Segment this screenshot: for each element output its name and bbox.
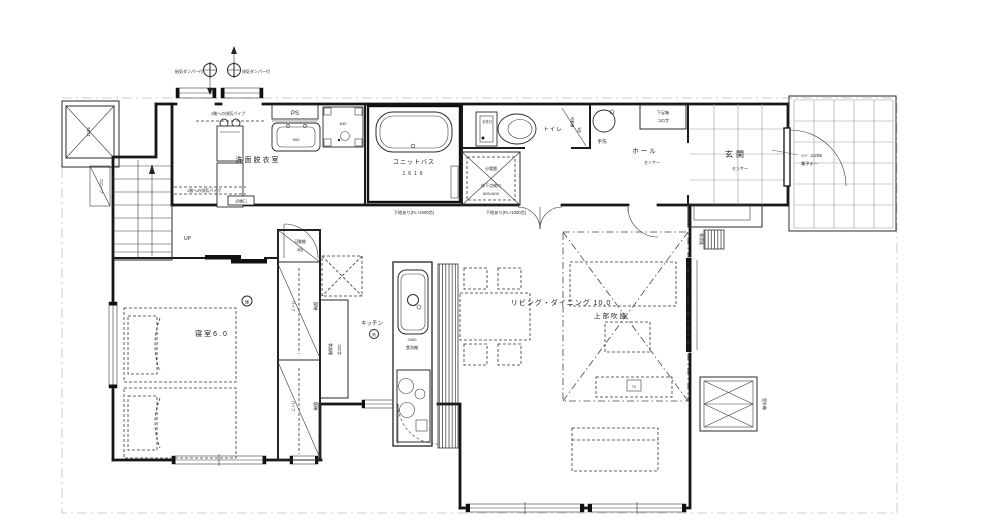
closet-shelf-count: 3段: [297, 247, 303, 252]
closet-shelf-label: 可動棚: [294, 239, 306, 244]
dist-board-label: 分電盤: [485, 165, 497, 171]
vanity-width-label: 900: [293, 137, 300, 142]
bathroom: ユニットバス 1616: [368, 106, 460, 202]
shoe-box-label: 下足箱: [657, 109, 669, 115]
kitchen-counter: 2400 食洗機: [393, 262, 432, 446]
floor-plan-drawing: 1105 スロープ: [0, 0, 1000, 520]
pipe-space: PS: [272, 105, 318, 121]
closet-column: 可動棚 3段 収納 パイプ 収納 パイプ: [278, 224, 320, 460]
entrance-door-model: ｲﾉﾍﾞ 21050: [801, 153, 823, 158]
slope-label: スロープ: [99, 179, 104, 194]
vanity-unit: 900: [272, 123, 320, 151]
closet-1: 収納 パイプ: [278, 262, 320, 360]
kitchen: 食器棚 コの字 キッチン 熱 2400 食洗機: [320, 256, 458, 448]
outline-frame: [62, 98, 897, 513]
living-south-window-1: [466, 502, 584, 514]
toilet-shelf-label: 可動棚: [570, 117, 575, 128]
shaft-dim-label: 1105: [86, 127, 91, 137]
counter-front-panel: [438, 264, 458, 448]
laundry-room: PS 900 640 2階への排気パイプ 1階への排気パイプ 点検口: [174, 105, 363, 207]
hanger-pipe1-label: パイプ: [291, 301, 296, 312]
hall: 手洗 下足箱 コの字 ホール センサー: [593, 105, 686, 165]
base-note-2: 下地あり(FL+1000芯): [486, 209, 527, 216]
washer-pan: 640: [323, 107, 363, 147]
vent-access-label: 点検口: [235, 199, 247, 204]
toilet-room: 手洗付 トイレ 可動棚 3段: [476, 108, 586, 146]
pipe-space-label: PS: [291, 111, 299, 117]
vent-top-note: 2階への排気パイプ: [211, 110, 245, 116]
heat-detector-glyph: 熱: [372, 332, 376, 337]
washer-pan-label: 640: [340, 121, 347, 126]
exhaust-damper-label: 排気ダンパー付: [242, 68, 270, 74]
slope-strip: スロープ: [90, 166, 110, 206]
laundry-room-label: 洗面脱衣室: [236, 155, 281, 164]
entrance-label: 玄関: [725, 149, 747, 159]
bedroom-west-window: [109, 302, 117, 388]
dishwasher-width-label: 2400: [408, 337, 418, 342]
staircase: UP: [113, 160, 192, 260]
bedroom: 煙 寝室6.0: [124, 255, 267, 458]
cupboard-shape: コの字: [337, 343, 343, 355]
outdoor-unit: 室外機: [700, 377, 768, 431]
water-heater-label: 給湯器: [699, 233, 704, 245]
storage1-label: 収納: [312, 302, 319, 311]
bath-label: ユニットバス: [393, 159, 435, 166]
floor-hatch-size: 600×600: [483, 191, 499, 196]
hand-wash-label: 手洗: [598, 138, 607, 145]
entrance-note: センサー: [732, 166, 748, 171]
hanger-pipe2-label: パイプ: [291, 401, 296, 412]
tv-board: TV: [596, 377, 672, 397]
toilet-shelf-count: 3段: [577, 127, 582, 133]
entrance: 玄関 センサー ｲﾉﾍﾞ 21050 電子キー 給湯器: [688, 96, 896, 249]
laundry-high-window-2: [221, 88, 263, 98]
living-area: TV リビング・ダイニング 10.0 上部吹抜: [511, 232, 688, 471]
floor-hatch-box: 分電盤 床下点検口 600×600: [462, 152, 520, 205]
bed-2: [124, 388, 236, 458]
bedroom-label: 寝室6.0: [195, 329, 229, 338]
tv-label: TV: [632, 385, 637, 389]
kitchen-label: キッチン: [361, 320, 384, 327]
bed-1: [124, 308, 236, 382]
living-south-window-2: [588, 502, 686, 514]
shoe-box-shape: コの字: [657, 117, 669, 123]
entrance-door: ｲﾉﾍﾞ 21050 電子キー: [772, 128, 846, 186]
dishwasher-label: 食洗機: [406, 344, 418, 350]
shaft-box: 1105: [62, 101, 119, 167]
cupboard: 食器棚 コの字: [320, 300, 348, 398]
hall-note: センサー: [644, 160, 660, 165]
exhaust-damper-icon: [228, 46, 241, 78]
heat-detector-icon: 熱: [370, 330, 379, 339]
vent-bottom-note: 1階への排気パイプ: [187, 187, 221, 193]
bath-size-label: 1616: [402, 171, 425, 177]
bedroom-south-window: [172, 454, 266, 466]
pantry-upper-cabinet: [322, 256, 362, 296]
floor-hatch-label: 床下点検口: [481, 182, 501, 188]
floor-plan-canvas: 1105 スロープ: [0, 0, 1000, 520]
entrance-door-key: 電子キー: [801, 160, 818, 167]
stair-up-label: UP: [184, 236, 192, 242]
sofa: [572, 428, 658, 471]
toilet-tank-label: 手洗付: [482, 119, 492, 124]
storage2-label: 収納: [312, 402, 319, 411]
outdoor-unit-label: 室外機: [762, 398, 768, 410]
living-dining-label: リビング・ダイニング 10.0: [511, 298, 612, 307]
smoke-detector-icon: 煙: [242, 296, 252, 306]
hall-label: ホール: [632, 147, 658, 155]
corridor-doors: [518, 207, 658, 237]
damper-symbols: 給気ダンパー付 排気ダンパー付: [175, 46, 270, 95]
kitchen-south-window: [362, 400, 396, 408]
cupboard-label: 食器棚: [328, 343, 334, 355]
wall-base-notes: 下地あり(FL+1000芯) 下地あり(FL+1000芯): [394, 209, 527, 216]
toilet-label: トイレ: [543, 127, 563, 133]
void-above-label: 上部吹抜: [594, 311, 628, 320]
base-note-1: 下地あり(FL+1000芯): [394, 209, 435, 216]
supply-damper-label: 給気ダンパー付: [175, 68, 203, 74]
dining-set: [460, 268, 530, 365]
water-heater: 給湯器: [699, 230, 724, 249]
closet-2: 収納 パイプ: [278, 360, 320, 460]
porch-steps: [688, 205, 762, 227]
smoke-detector-glyph: 煙: [245, 299, 249, 305]
